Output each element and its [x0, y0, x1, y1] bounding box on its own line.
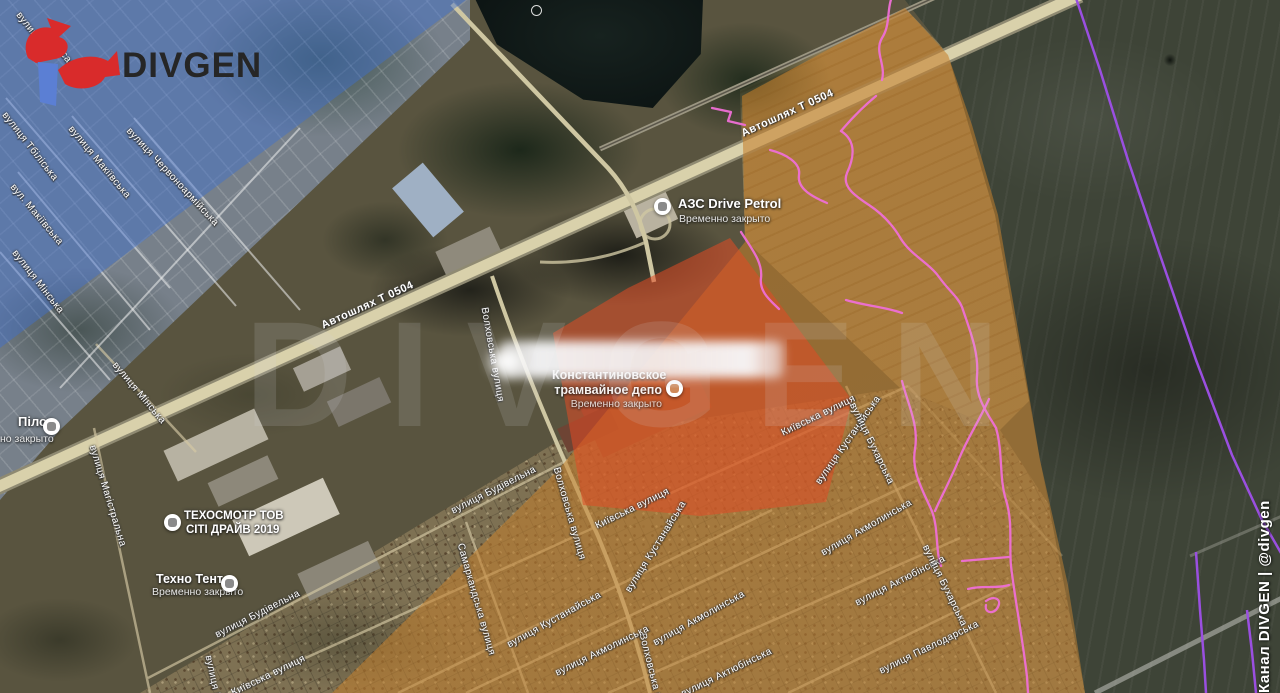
poi-status: Временно закрыто	[679, 213, 770, 225]
map-canvas[interactable]: Автошлях Т 0504 Автошлях Т 0504 вулиця о…	[0, 0, 1280, 693]
tram-depot-pin[interactable]	[666, 380, 683, 397]
logo-mark-icon	[14, 16, 124, 111]
pilot-pin[interactable]	[43, 418, 60, 435]
small-poi-ring	[531, 5, 542, 16]
poi-status: Временно закрыто	[552, 398, 662, 410]
channel-logo: DIVGEN	[14, 16, 314, 116]
channel-credit: Канал DIVGEN | @divgen	[1256, 373, 1273, 693]
tehno-tent-pin[interactable]	[221, 575, 238, 592]
poi-name-line2: трамвайное депо	[552, 383, 662, 397]
gas-station-pin[interactable]	[654, 198, 671, 215]
poi-name[interactable]: АЗС Drive Petrol	[678, 196, 781, 211]
poi-status: но закрыто	[0, 433, 54, 445]
censored-label-blur-cap	[490, 348, 522, 375]
censored-label-blur	[500, 341, 784, 378]
techosmotr-pin[interactable]	[164, 514, 181, 531]
logo-wordmark: DIVGEN	[122, 46, 262, 86]
poi-name[interactable]: Техно Тент	[156, 572, 223, 586]
poi-name[interactable]: ТЕХОСМОТР ТОВ	[184, 510, 284, 522]
poi-name-line2: СІТІ ДРАЙВ 2019	[186, 524, 279, 536]
